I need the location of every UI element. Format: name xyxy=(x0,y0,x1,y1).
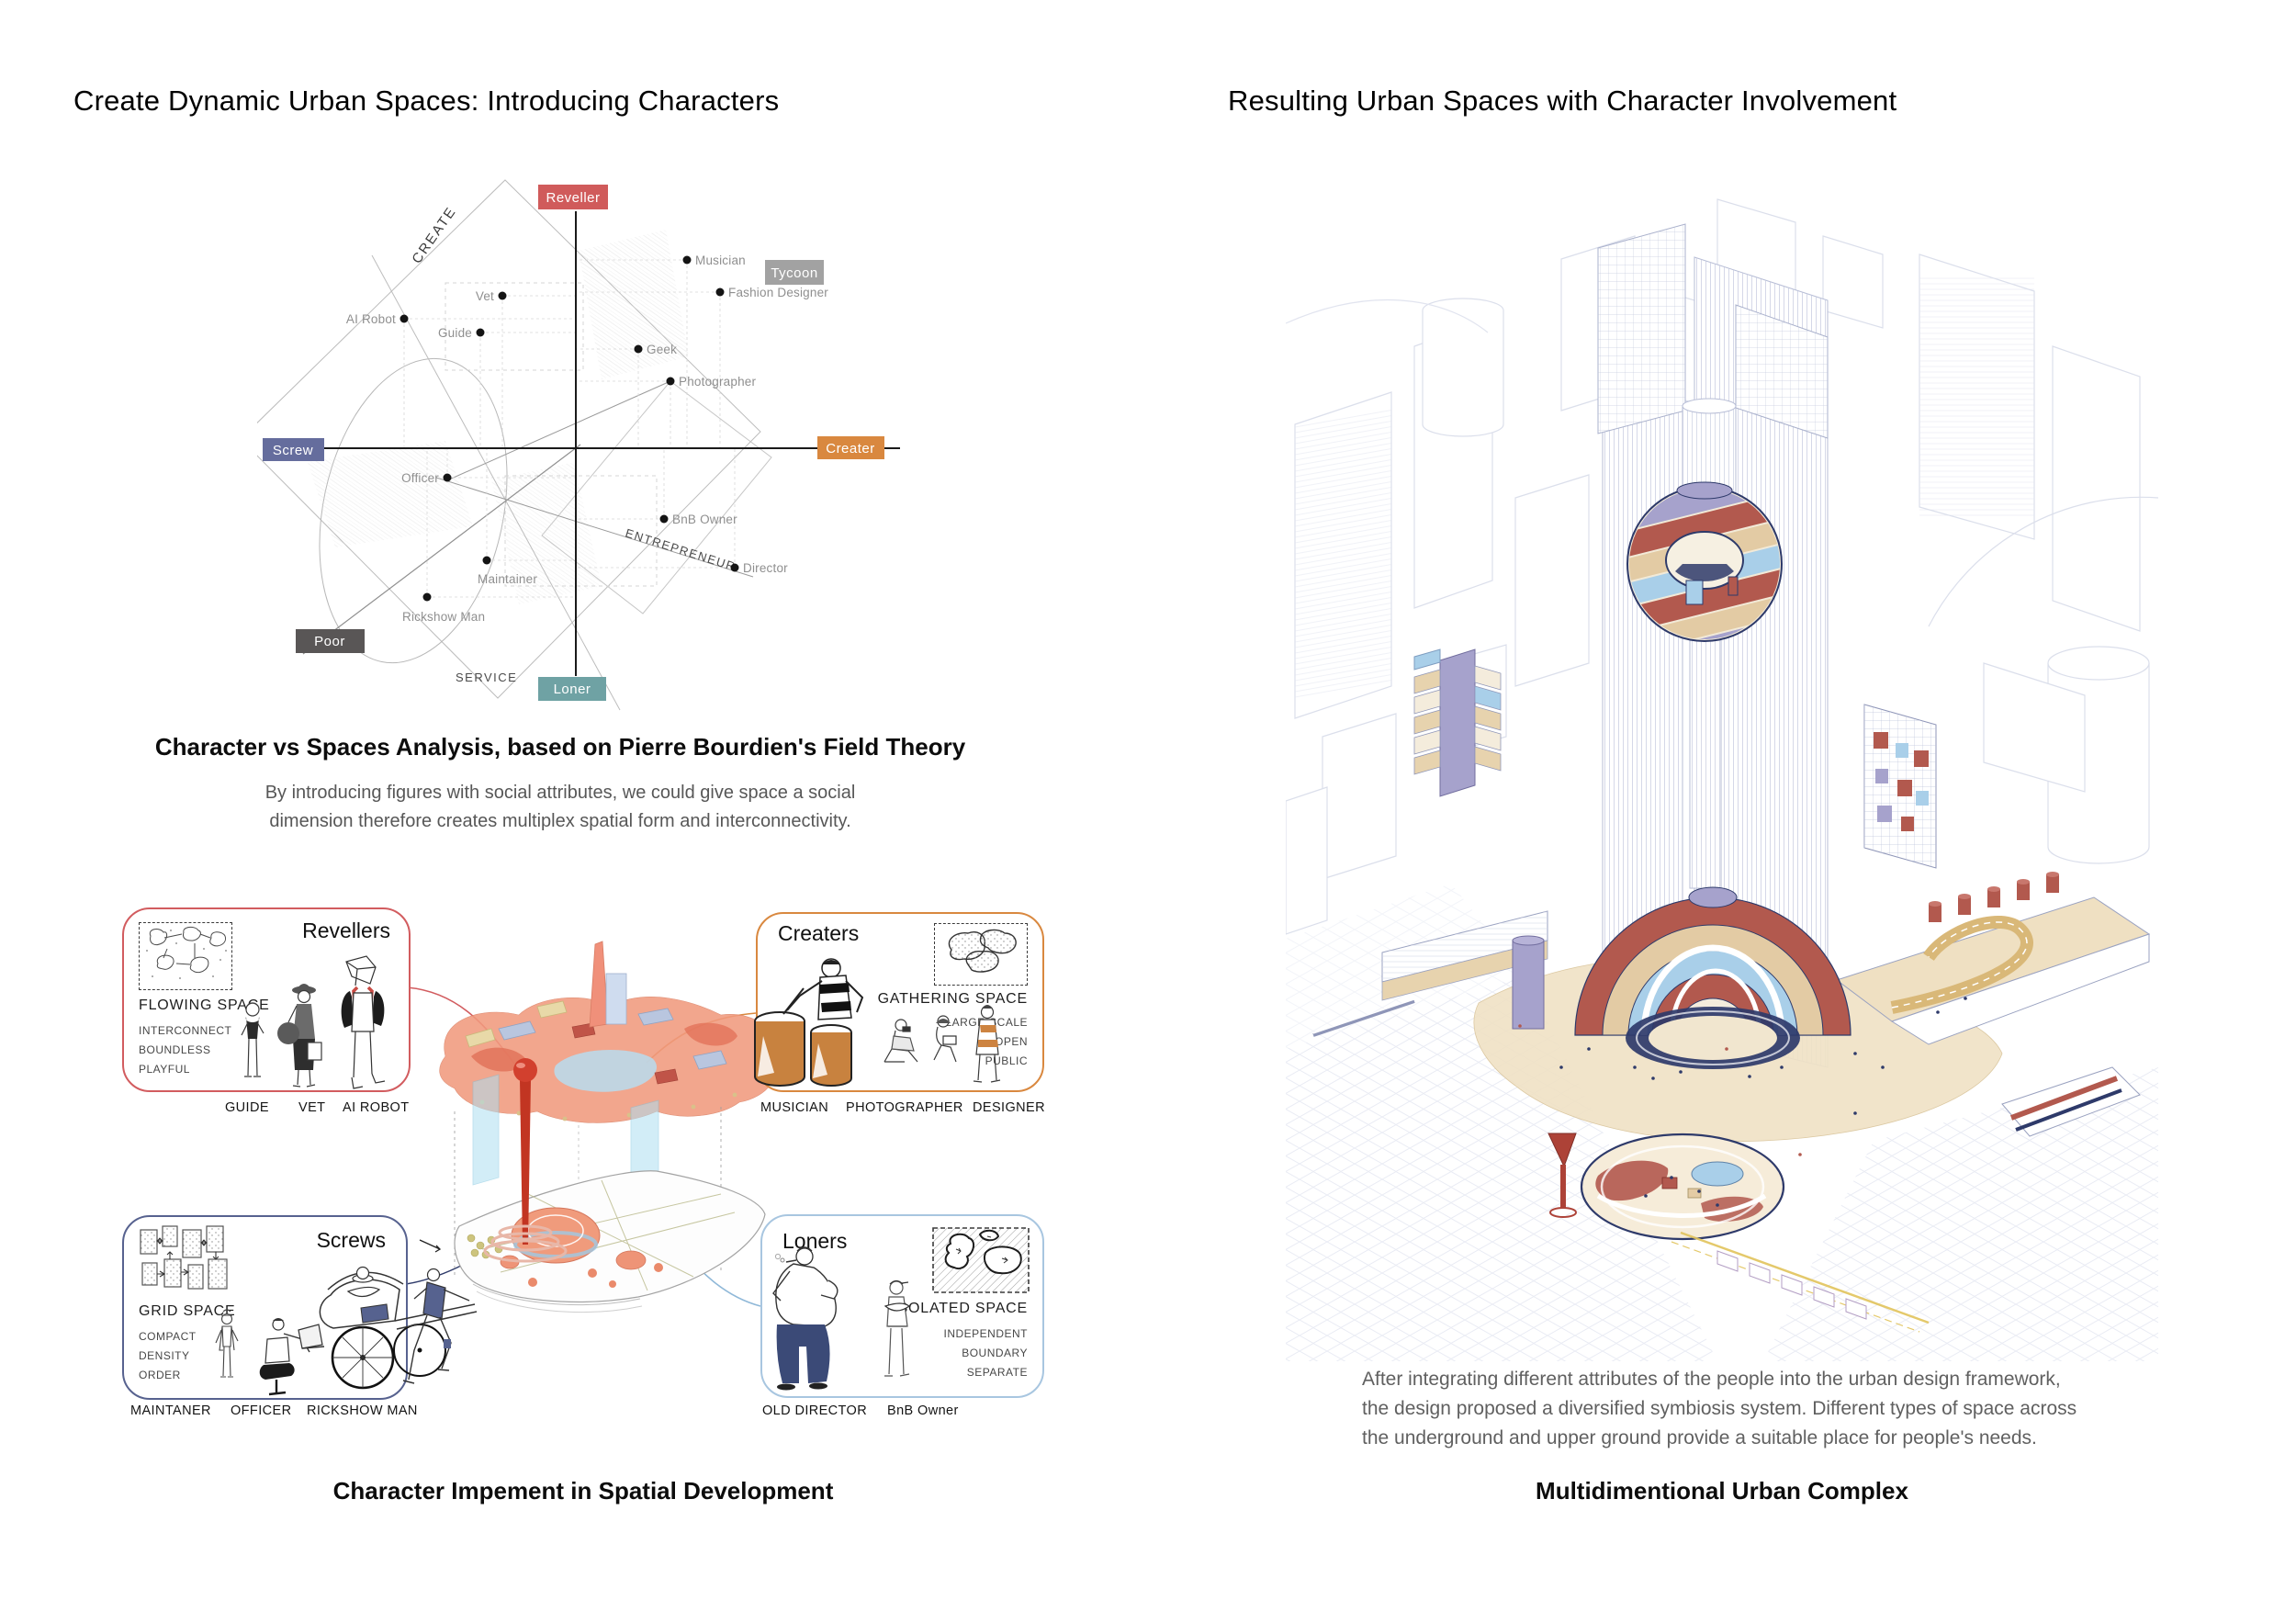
role-maintaner: MAINTANER xyxy=(130,1403,211,1418)
group-title-revellers: Revellers xyxy=(302,919,390,943)
right-section-fragment xyxy=(1864,704,1936,868)
creater-figures xyxy=(747,941,1022,1101)
point-vet xyxy=(499,292,507,300)
ai-robot-figure xyxy=(342,956,385,1088)
axis-label-service: SERVICE xyxy=(456,671,517,684)
point-musician xyxy=(683,256,692,265)
attribute: COMPACT xyxy=(139,1327,197,1347)
left-page-title: Create Dynamic Urban Spaces: Introducing… xyxy=(73,85,779,118)
point-guide xyxy=(477,329,485,337)
right-description-line3: the underground and upper ground provide… xyxy=(1362,1424,2077,1453)
role-rickshow-man: RICKSHOW MAN xyxy=(307,1403,418,1418)
attribute: ORDER xyxy=(139,1366,197,1385)
screw-role-labels: MAINTANER OFFICER RICKSHOW MAN xyxy=(122,1403,434,1426)
loner-role-labels: OLD DIRECTOR BnB Owner xyxy=(760,1403,1041,1426)
point-label-photographer: Photographer xyxy=(679,375,757,389)
bnb-owner-figure xyxy=(884,1281,909,1377)
role-musician: MUSICIAN xyxy=(760,1100,828,1115)
maintainer-figure xyxy=(216,1310,238,1377)
group-box-revellers: Revellers FLOWING SPACE INTERCONNECT BOU… xyxy=(122,907,411,1092)
point-label-musician: Musician xyxy=(695,254,746,267)
guide-figure xyxy=(242,1003,264,1076)
point-label-fashion-designer: Fashion Designer xyxy=(728,286,828,299)
old-director-figure xyxy=(773,1247,838,1391)
attribute: DENSITY xyxy=(139,1347,197,1366)
urban-complex-illustration xyxy=(1286,149,2158,1361)
attribute: SEPARATE xyxy=(943,1363,1028,1382)
group-box-screws: Screws GRID SPACE COMPACT DENSITY ORDER xyxy=(122,1215,408,1400)
reveller-figures xyxy=(218,947,411,1103)
analysis-description: By introducing figures with social attri… xyxy=(119,779,1001,836)
point-fashion-designer xyxy=(716,288,725,297)
point-rickshow-man xyxy=(423,593,432,602)
officer-figure xyxy=(260,1318,324,1394)
point-label-rickshow-man: Rickshow Man xyxy=(402,610,485,624)
pole-boxes: Reveller Tycoon Screw Creater Poor Loner xyxy=(263,185,884,701)
right-page-title: Resulting Urban Spaces with Character In… xyxy=(1228,85,1896,118)
vet-figure xyxy=(277,984,321,1087)
point-label-bnb-owner: BnB Owner xyxy=(672,513,737,526)
creater-role-labels: MUSICIAN PHOTOGRAPHER DESIGNER xyxy=(756,1100,1041,1122)
group-box-loners: Loners ISOLATED SPACE INDEPENDENT BOUNDA… xyxy=(760,1214,1044,1398)
loner-figures xyxy=(762,1234,946,1409)
right-description: After integrating different attributes o… xyxy=(1362,1365,2077,1453)
pole-reveller: Reveller xyxy=(546,190,600,206)
analysis-description-line2: dimension therefore creates multiplex sp… xyxy=(119,807,1001,836)
right-description-line1: After integrating different attributes o… xyxy=(1362,1365,2077,1394)
pole-tycoon: Tycoon xyxy=(771,265,817,281)
left-bottom-caption: Character Impement in Spatial Developmen… xyxy=(119,1477,1047,1505)
field-theory-diagram: CREATE ENTREPRENEUR SERVICE Reveller Tyc… xyxy=(257,173,932,724)
point-ai-robot xyxy=(400,315,409,323)
role-vet: VET xyxy=(298,1100,325,1115)
point-director xyxy=(731,564,739,572)
point-label-director: Director xyxy=(743,561,788,575)
point-bnb-owner xyxy=(660,515,669,524)
attribute: INDEPENDENT xyxy=(943,1324,1028,1344)
point-geek xyxy=(635,345,643,354)
point-label-ai-robot: AI Robot xyxy=(346,312,396,326)
reveller-role-labels: GUIDE VET AI ROBOT xyxy=(122,1100,407,1122)
pole-screw: Screw xyxy=(273,443,313,458)
space-attributes: INDEPENDENT BOUNDARY SEPARATE xyxy=(943,1324,1028,1382)
right-bottom-caption: Multidimentional Urban Complex xyxy=(1286,1477,2158,1505)
point-label-officer: Officer xyxy=(401,471,439,485)
presentation-board: Create Dynamic Urban Spaces: Introducing… xyxy=(0,0,2296,1623)
axis-label-create: CREATE xyxy=(409,204,459,267)
point-officer xyxy=(444,474,452,482)
point-maintainer xyxy=(483,557,491,565)
role-officer: OFFICER xyxy=(231,1403,291,1418)
pole-poor: Poor xyxy=(314,634,345,649)
sunken-plaza xyxy=(1581,1134,1784,1239)
point-label-guide: Guide xyxy=(438,326,472,340)
point-label-maintainer: Maintainer xyxy=(478,572,537,586)
point-label-geek: Geek xyxy=(647,343,677,356)
attribute: BOUNDARY xyxy=(943,1344,1028,1363)
analysis-caption: Character vs Spaces Analysis, based on P… xyxy=(119,733,1001,761)
axis-label-entrepreneur: ENTREPRENEUR xyxy=(624,526,737,574)
analysis-description-line1: By introducing figures with social attri… xyxy=(119,779,1001,807)
photographer-figures xyxy=(884,1016,956,1062)
role-bnb-owner: BnB Owner xyxy=(887,1403,959,1418)
point-label-vet: Vet xyxy=(476,289,494,303)
group-box-creaters: Creaters GATHERING SPACE LARGE-SCALE OPE… xyxy=(756,912,1044,1092)
screw-figures xyxy=(207,1231,482,1414)
role-guide: GUIDE xyxy=(225,1100,269,1115)
point-photographer xyxy=(667,378,675,386)
right-description-line2: the design proposed a diversified symbio… xyxy=(1362,1394,2077,1424)
designer-figure xyxy=(974,1005,1000,1082)
role-ai-robot: AI ROBOT xyxy=(343,1100,410,1115)
role-designer: DESIGNER xyxy=(973,1100,1045,1115)
role-old-director: OLD DIRECTOR xyxy=(762,1403,867,1418)
role-photographer: PHOTOGRAPHER xyxy=(846,1100,963,1115)
musician-figure xyxy=(755,959,862,1086)
pole-creater: Creater xyxy=(826,441,875,456)
space-attributes: COMPACT DENSITY ORDER xyxy=(139,1327,197,1385)
isolated-space-sketch xyxy=(932,1227,1030,1293)
rickshaw-figure xyxy=(320,1268,477,1389)
pole-loner: Loner xyxy=(554,682,591,697)
